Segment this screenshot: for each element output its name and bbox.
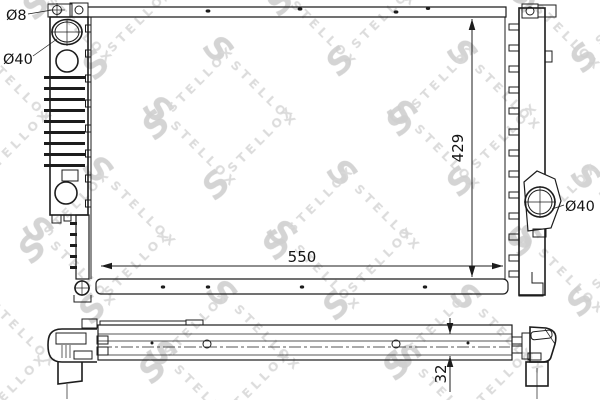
left-tank-fins	[44, 76, 85, 167]
core-height-value: 429	[449, 134, 467, 163]
core-thickness-value: 32	[432, 364, 450, 383]
left-port-diameter-value: Ø40	[3, 52, 33, 68]
radiator-technical-drawing: S STELLOX S STELLOX	[0, 0, 600, 400]
mount-hole-diameter-value: Ø8	[6, 8, 27, 24]
right-port-diameter-value: Ø40	[565, 199, 595, 215]
drawing-canvas: S STELLOX S STELLOX	[0, 0, 600, 400]
core-width-value: 550	[288, 248, 317, 266]
